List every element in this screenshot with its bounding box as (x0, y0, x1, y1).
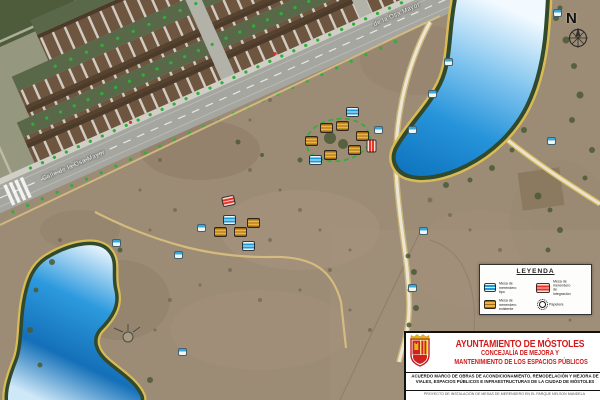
north-arrow-label: N (566, 10, 577, 27)
picnic-table-marker-blue (346, 107, 359, 117)
bench-marker (408, 284, 417, 292)
legend-item-bin: Papelera (536, 296, 589, 313)
site-plan-map: Calle de la Osa Mayor de la Osa Mayor N … (0, 0, 600, 400)
picnic-table-marker-yellow (234, 227, 247, 237)
picnic-table-marker-red (366, 140, 376, 153)
bench-marker (547, 137, 556, 145)
bench-marker (174, 251, 183, 259)
picnic-table-marker-blue (242, 241, 255, 251)
picnic-table-marker-blue (223, 215, 236, 225)
bench-marker (197, 224, 206, 232)
picnic-table-yellow-icon (484, 300, 496, 309)
project-title: PROYECTO DE INSTALACIÓN DE MESAS DE MERE… (406, 391, 600, 396)
title-block-header: AYUNTAMIENTO DE MÓSTOLES CONCEJALÍA DE M… (406, 333, 600, 372)
picnic-table-red-icon (536, 283, 550, 293)
picnic-table-blue-icon (484, 283, 496, 292)
framework-line-1: ACUERDO MARCO DE OBRAS DE ACONDICIONAMIE… (411, 374, 598, 378)
bench-marker (374, 126, 383, 134)
picnic-table-marker-blue (309, 155, 322, 165)
picnic-table-marker-yellow (247, 218, 260, 228)
picnic-table-marker-yellow (320, 123, 333, 133)
legend-items: Mesa de merendero tipo Mesa de merendero… (484, 279, 589, 313)
bench-marker (112, 239, 121, 247)
bench-marker (178, 348, 187, 356)
picnic-table-marker-yellow (348, 145, 361, 155)
organization-title: AYUNTAMIENTO DE MÓSTOLES (454, 338, 585, 350)
bench-marker (444, 58, 453, 66)
department-line-1: CONCEJALÍA DE MEJORA Y (454, 350, 585, 358)
project-title-row: PROYECTO DE INSTALACIÓN DE MESAS DE MERE… (406, 390, 600, 400)
bench-marker (553, 9, 562, 17)
picnic-table-marker-yellow (336, 121, 349, 131)
department-line-2: MANTENIMIENTO DE LOS ESPACIOS PÚBLICOS (454, 359, 585, 367)
legend-item-table-red: Mesa de merendero de integración (536, 279, 589, 296)
picnic-table-marker-yellow (305, 136, 318, 146)
picnic-table-marker-yellow (214, 227, 227, 237)
bench-marker (428, 90, 437, 98)
bench-marker (408, 126, 417, 134)
title-block: AYUNTAMIENTO DE MÓSTOLES CONCEJALÍA DE M… (404, 331, 600, 400)
framework-agreement-row: ACUERDO MARCO DE OBRAS DE ACONDICIONAMIE… (406, 372, 600, 390)
picnic-table-marker-yellow (324, 150, 337, 160)
framework-line-2: VIALES, ESPACIOS PÚBLICOS E INFRAESTRUCT… (416, 380, 595, 384)
legend-title: LEYENDA (480, 268, 591, 275)
legend-panel: LEYENDA Mesa de merendero tipo Mesa de m… (479, 264, 592, 315)
legend-item-table-yellow: Mesa de merendero existente (484, 296, 536, 313)
bench-marker (419, 227, 428, 235)
bin-icon (539, 301, 546, 308)
legend-item-table-blue: Mesa de merendero tipo (484, 279, 536, 296)
